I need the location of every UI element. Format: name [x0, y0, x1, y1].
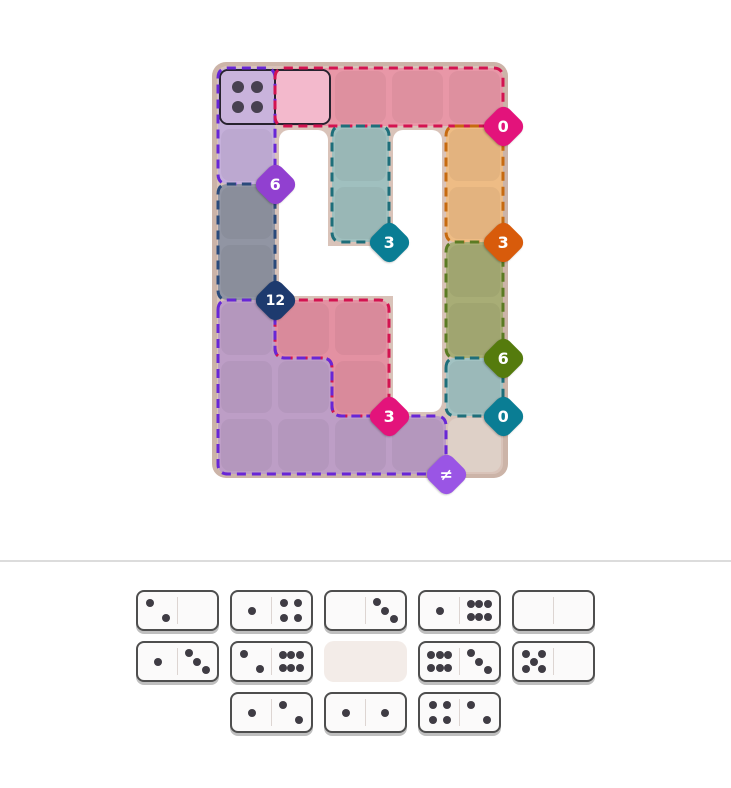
badge-diamond: 3	[480, 219, 527, 266]
pip	[429, 701, 437, 709]
badge-diamond: ≠	[423, 451, 470, 498]
tray-domino-1-6[interactable]	[418, 590, 501, 631]
domino-half-0	[514, 592, 554, 629]
tray-domino-0-0[interactable]	[512, 590, 595, 631]
badge-value: 3	[383, 408, 394, 424]
pip	[240, 650, 248, 658]
pip	[436, 651, 444, 659]
tray-domino-1-3[interactable]	[136, 641, 219, 682]
pip	[538, 665, 546, 673]
pip	[484, 613, 492, 621]
tray-domino-1-2[interactable]	[230, 692, 313, 733]
pip	[427, 664, 435, 672]
tray-domino-0-3[interactable]	[324, 590, 407, 631]
section-divider	[0, 560, 731, 562]
domino-half-4	[420, 694, 460, 731]
badge-diamond: 6	[252, 161, 299, 208]
domino-tray	[0, 590, 731, 733]
pip	[287, 664, 295, 672]
region-outline-purple-bottom	[218, 300, 446, 474]
region-badge-red-lower: 3	[366, 393, 412, 439]
pip	[342, 709, 350, 717]
tray-domino-1-1[interactable]	[324, 692, 407, 733]
pip	[295, 716, 303, 724]
badge-diamond: 3	[366, 393, 413, 440]
domino-half-5	[514, 643, 554, 680]
region-badge-red-top: 0	[480, 103, 526, 149]
domino-half-1	[326, 694, 366, 731]
pip	[279, 701, 287, 709]
badge-diamond: 0	[480, 393, 527, 440]
pip	[522, 650, 530, 658]
pip	[279, 651, 287, 659]
domino-half-2	[460, 694, 500, 731]
tray-row-2	[136, 641, 595, 682]
badge-value: 0	[497, 118, 508, 134]
pip	[146, 599, 154, 607]
tray-domino-1-4[interactable]	[230, 590, 313, 631]
tray-domino-2-0[interactable]	[136, 590, 219, 631]
domino-half-6	[272, 643, 312, 680]
badge-value: 0	[497, 408, 508, 424]
puzzle-board: 603312603≠	[212, 62, 508, 478]
pip	[279, 664, 287, 672]
pip	[256, 665, 264, 673]
pip	[436, 664, 444, 672]
domino-half-1	[232, 694, 272, 731]
domino-half-2	[272, 694, 312, 731]
pip	[280, 614, 288, 622]
pip	[193, 658, 201, 666]
pip	[484, 600, 492, 608]
tray-domino-6-3[interactable]	[418, 641, 501, 682]
pip	[154, 658, 162, 666]
pip	[248, 607, 256, 615]
domino-half-1	[232, 592, 272, 629]
pip	[294, 599, 302, 607]
pip	[443, 716, 451, 724]
board-regions-outline-layer	[212, 62, 508, 478]
domino-half-3	[178, 643, 218, 680]
pip	[162, 614, 170, 622]
pip	[287, 651, 295, 659]
pip	[373, 598, 381, 606]
pip	[185, 649, 193, 657]
pip	[381, 607, 389, 615]
badge-value: 6	[497, 350, 508, 366]
region-badge-orange-right: 3	[480, 219, 526, 265]
pip	[467, 649, 475, 657]
domino-half-2	[138, 592, 178, 629]
pip	[475, 658, 483, 666]
pip	[443, 701, 451, 709]
badge-diamond: 6	[480, 335, 527, 382]
pip	[467, 600, 475, 608]
tray-domino-5-0[interactable]	[512, 641, 595, 682]
region-badge-purple-top: 6	[252, 161, 298, 207]
tray-domino-4-2[interactable]	[418, 692, 501, 733]
domino-half-1	[366, 694, 406, 731]
tray-row-3	[230, 692, 501, 733]
pip	[530, 658, 538, 666]
badge-value: 3	[497, 234, 508, 250]
pip	[484, 666, 492, 674]
pip	[296, 664, 304, 672]
domino-half-6	[460, 592, 500, 629]
region-badge-green-right: 6	[480, 335, 526, 381]
domino-half-4	[272, 592, 312, 629]
domino-half-3	[460, 643, 500, 680]
pip	[429, 716, 437, 724]
region-badge-teal-small: 0	[480, 393, 526, 439]
pip	[296, 651, 304, 659]
tray-domino-2-6[interactable]	[230, 641, 313, 682]
badge-value: 12	[265, 293, 284, 307]
pip	[294, 614, 302, 622]
pip	[381, 709, 389, 717]
domino-half-1	[138, 643, 178, 680]
domino-half-0	[554, 592, 594, 629]
badge-diamond: 3	[366, 219, 413, 266]
pip	[522, 665, 530, 673]
pip	[427, 651, 435, 659]
badge-diamond: 0	[480, 103, 527, 150]
pip	[467, 613, 475, 621]
pip	[436, 607, 444, 615]
pip	[444, 651, 452, 659]
region-badge-teal-middle: 3	[366, 219, 412, 265]
region-badge-slate-left: 12	[252, 277, 298, 323]
pip	[202, 666, 210, 674]
domino-half-6	[420, 643, 460, 680]
domino-half-2	[232, 643, 272, 680]
badge-value: 3	[383, 234, 394, 250]
badge-diamond: 12	[252, 277, 299, 324]
badge-value: 6	[269, 176, 280, 192]
badge-value: ≠	[439, 466, 452, 482]
pip	[280, 599, 288, 607]
domino-half-0	[554, 643, 594, 680]
pip	[444, 664, 452, 672]
pip	[390, 615, 398, 623]
tray-row-1	[136, 590, 595, 631]
pip	[475, 600, 483, 608]
region-badge-purple-bottom: ≠	[423, 451, 469, 497]
pip	[248, 709, 256, 717]
domino-half-0	[326, 592, 366, 629]
domino-half-0	[178, 592, 218, 629]
pip	[483, 716, 491, 724]
pip	[475, 613, 483, 621]
empty-tray-slot	[324, 641, 407, 682]
region-outline-red-top	[275, 68, 503, 126]
pip	[467, 701, 475, 709]
domino-half-3	[366, 592, 406, 629]
domino-half-1	[420, 592, 460, 629]
pip	[538, 650, 546, 658]
